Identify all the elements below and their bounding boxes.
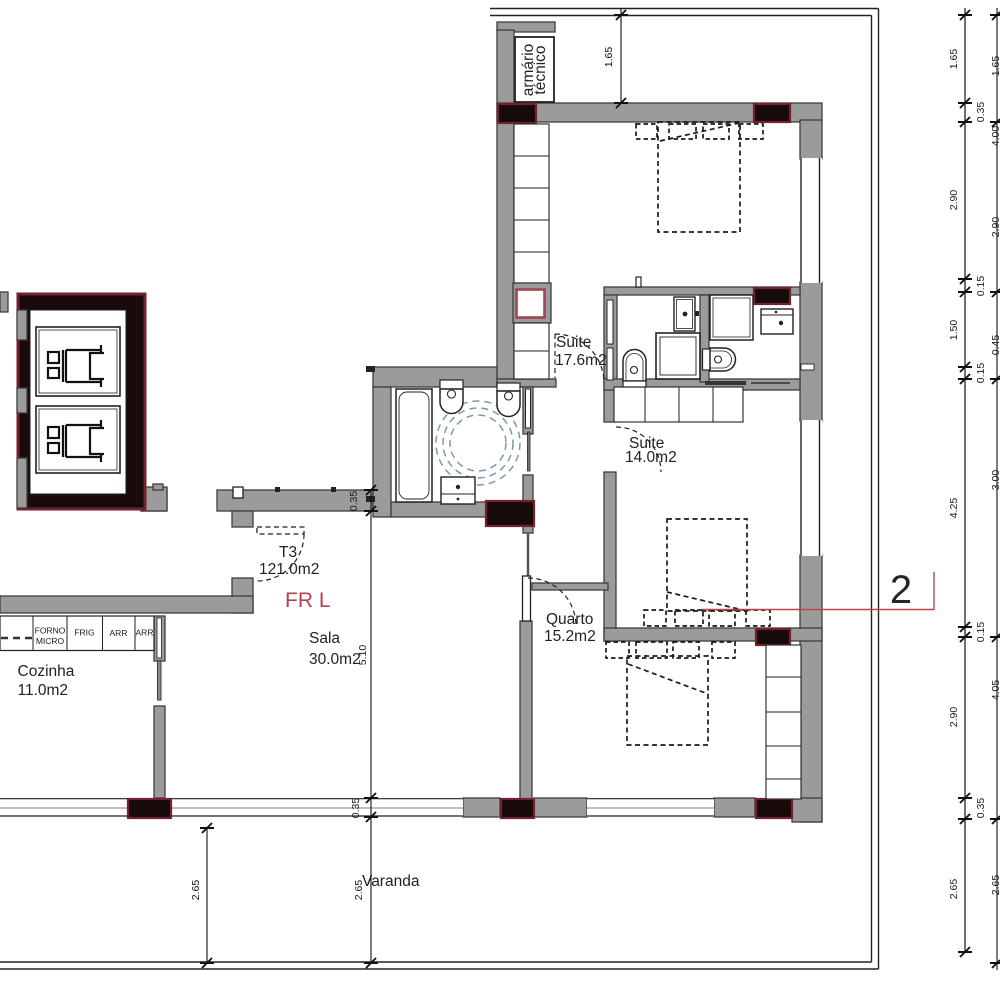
svg-text:2.90: 2.90 xyxy=(990,217,1000,238)
svg-text:2.65: 2.65 xyxy=(948,879,960,900)
svg-text:ARR: ARR xyxy=(136,628,154,638)
svg-text:17.6m2: 17.6m2 xyxy=(555,352,607,369)
svg-text:0.45: 0.45 xyxy=(990,335,1000,356)
svg-text:2.90: 2.90 xyxy=(948,707,960,728)
svg-text:4.05: 4.05 xyxy=(990,680,1000,701)
svg-text:1.50: 1.50 xyxy=(948,320,960,341)
svg-text:1.65: 1.65 xyxy=(948,49,960,70)
svg-text:5.10: 5.10 xyxy=(357,645,369,666)
svg-text:2.65: 2.65 xyxy=(190,880,202,901)
svg-text:15.2m2: 15.2m2 xyxy=(544,628,596,645)
svg-text:14.0m2: 14.0m2 xyxy=(625,449,677,466)
svg-text:FR L: FR L xyxy=(285,589,331,612)
svg-text:121.0m2: 121.0m2 xyxy=(259,561,319,578)
svg-text:30.0m2: 30.0m2 xyxy=(309,651,361,668)
svg-text:2: 2 xyxy=(890,568,912,612)
svg-text:Sala: Sala xyxy=(309,630,340,647)
svg-text:FORNO: FORNO xyxy=(35,626,66,636)
svg-text:Cozinha: Cozinha xyxy=(18,663,75,680)
svg-text:0.15: 0.15 xyxy=(975,622,987,643)
svg-text:MICRO: MICRO xyxy=(36,636,65,646)
svg-text:Quarto: Quarto xyxy=(546,611,593,628)
svg-text:0.35: 0.35 xyxy=(975,102,987,123)
svg-text:2.65: 2.65 xyxy=(990,875,1000,896)
svg-text:4.25: 4.25 xyxy=(948,498,960,519)
svg-text:técnico: técnico xyxy=(532,45,549,94)
svg-text:0.35: 0.35 xyxy=(350,798,362,819)
svg-text:ARR: ARR xyxy=(110,628,128,638)
svg-text:T3: T3 xyxy=(279,544,297,561)
svg-text:Suite: Suite xyxy=(556,334,591,351)
svg-text:FRIG: FRIG xyxy=(74,628,94,638)
svg-text:4.00: 4.00 xyxy=(990,126,1000,147)
svg-text:3.00: 3.00 xyxy=(990,470,1000,491)
svg-text:2.65: 2.65 xyxy=(353,880,365,901)
svg-text:0.15: 0.15 xyxy=(975,276,987,297)
svg-text:2.90: 2.90 xyxy=(948,190,960,211)
svg-text:0.35: 0.35 xyxy=(348,491,360,512)
svg-text:11.0m2: 11.0m2 xyxy=(18,682,69,699)
svg-text:0.35: 0.35 xyxy=(975,798,987,819)
svg-text:1.65: 1.65 xyxy=(603,47,615,68)
svg-text:0.15: 0.15 xyxy=(975,363,987,384)
svg-text:1.65: 1.65 xyxy=(990,56,1000,77)
